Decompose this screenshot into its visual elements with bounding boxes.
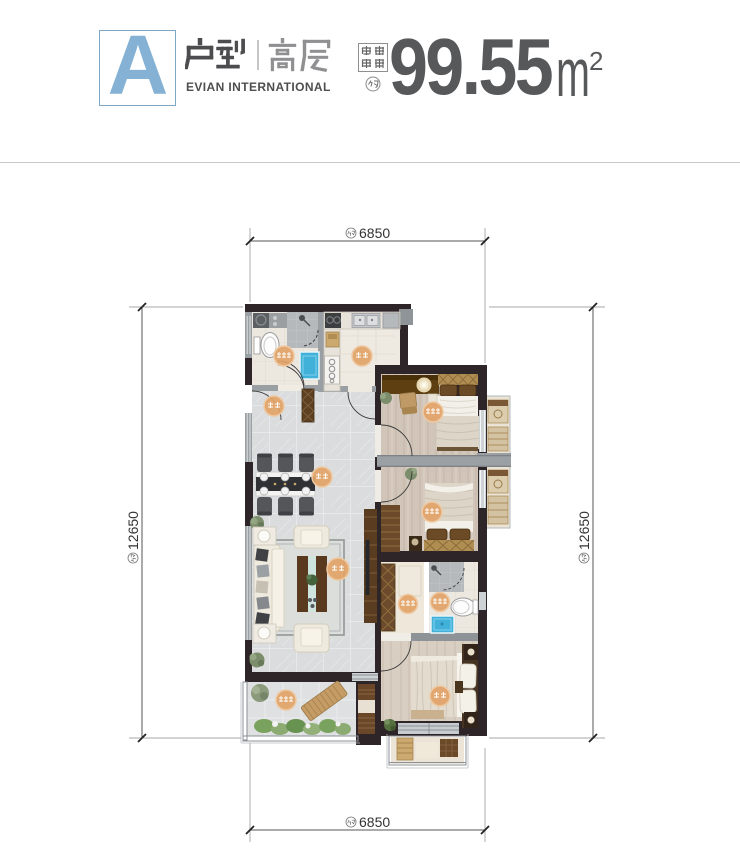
svg-text:6850: 6850 bbox=[359, 225, 390, 241]
svg-text:6850: 6850 bbox=[359, 814, 390, 830]
svg-text:12650: 12650 bbox=[125, 511, 141, 550]
svg-text:12650: 12650 bbox=[576, 511, 592, 550]
